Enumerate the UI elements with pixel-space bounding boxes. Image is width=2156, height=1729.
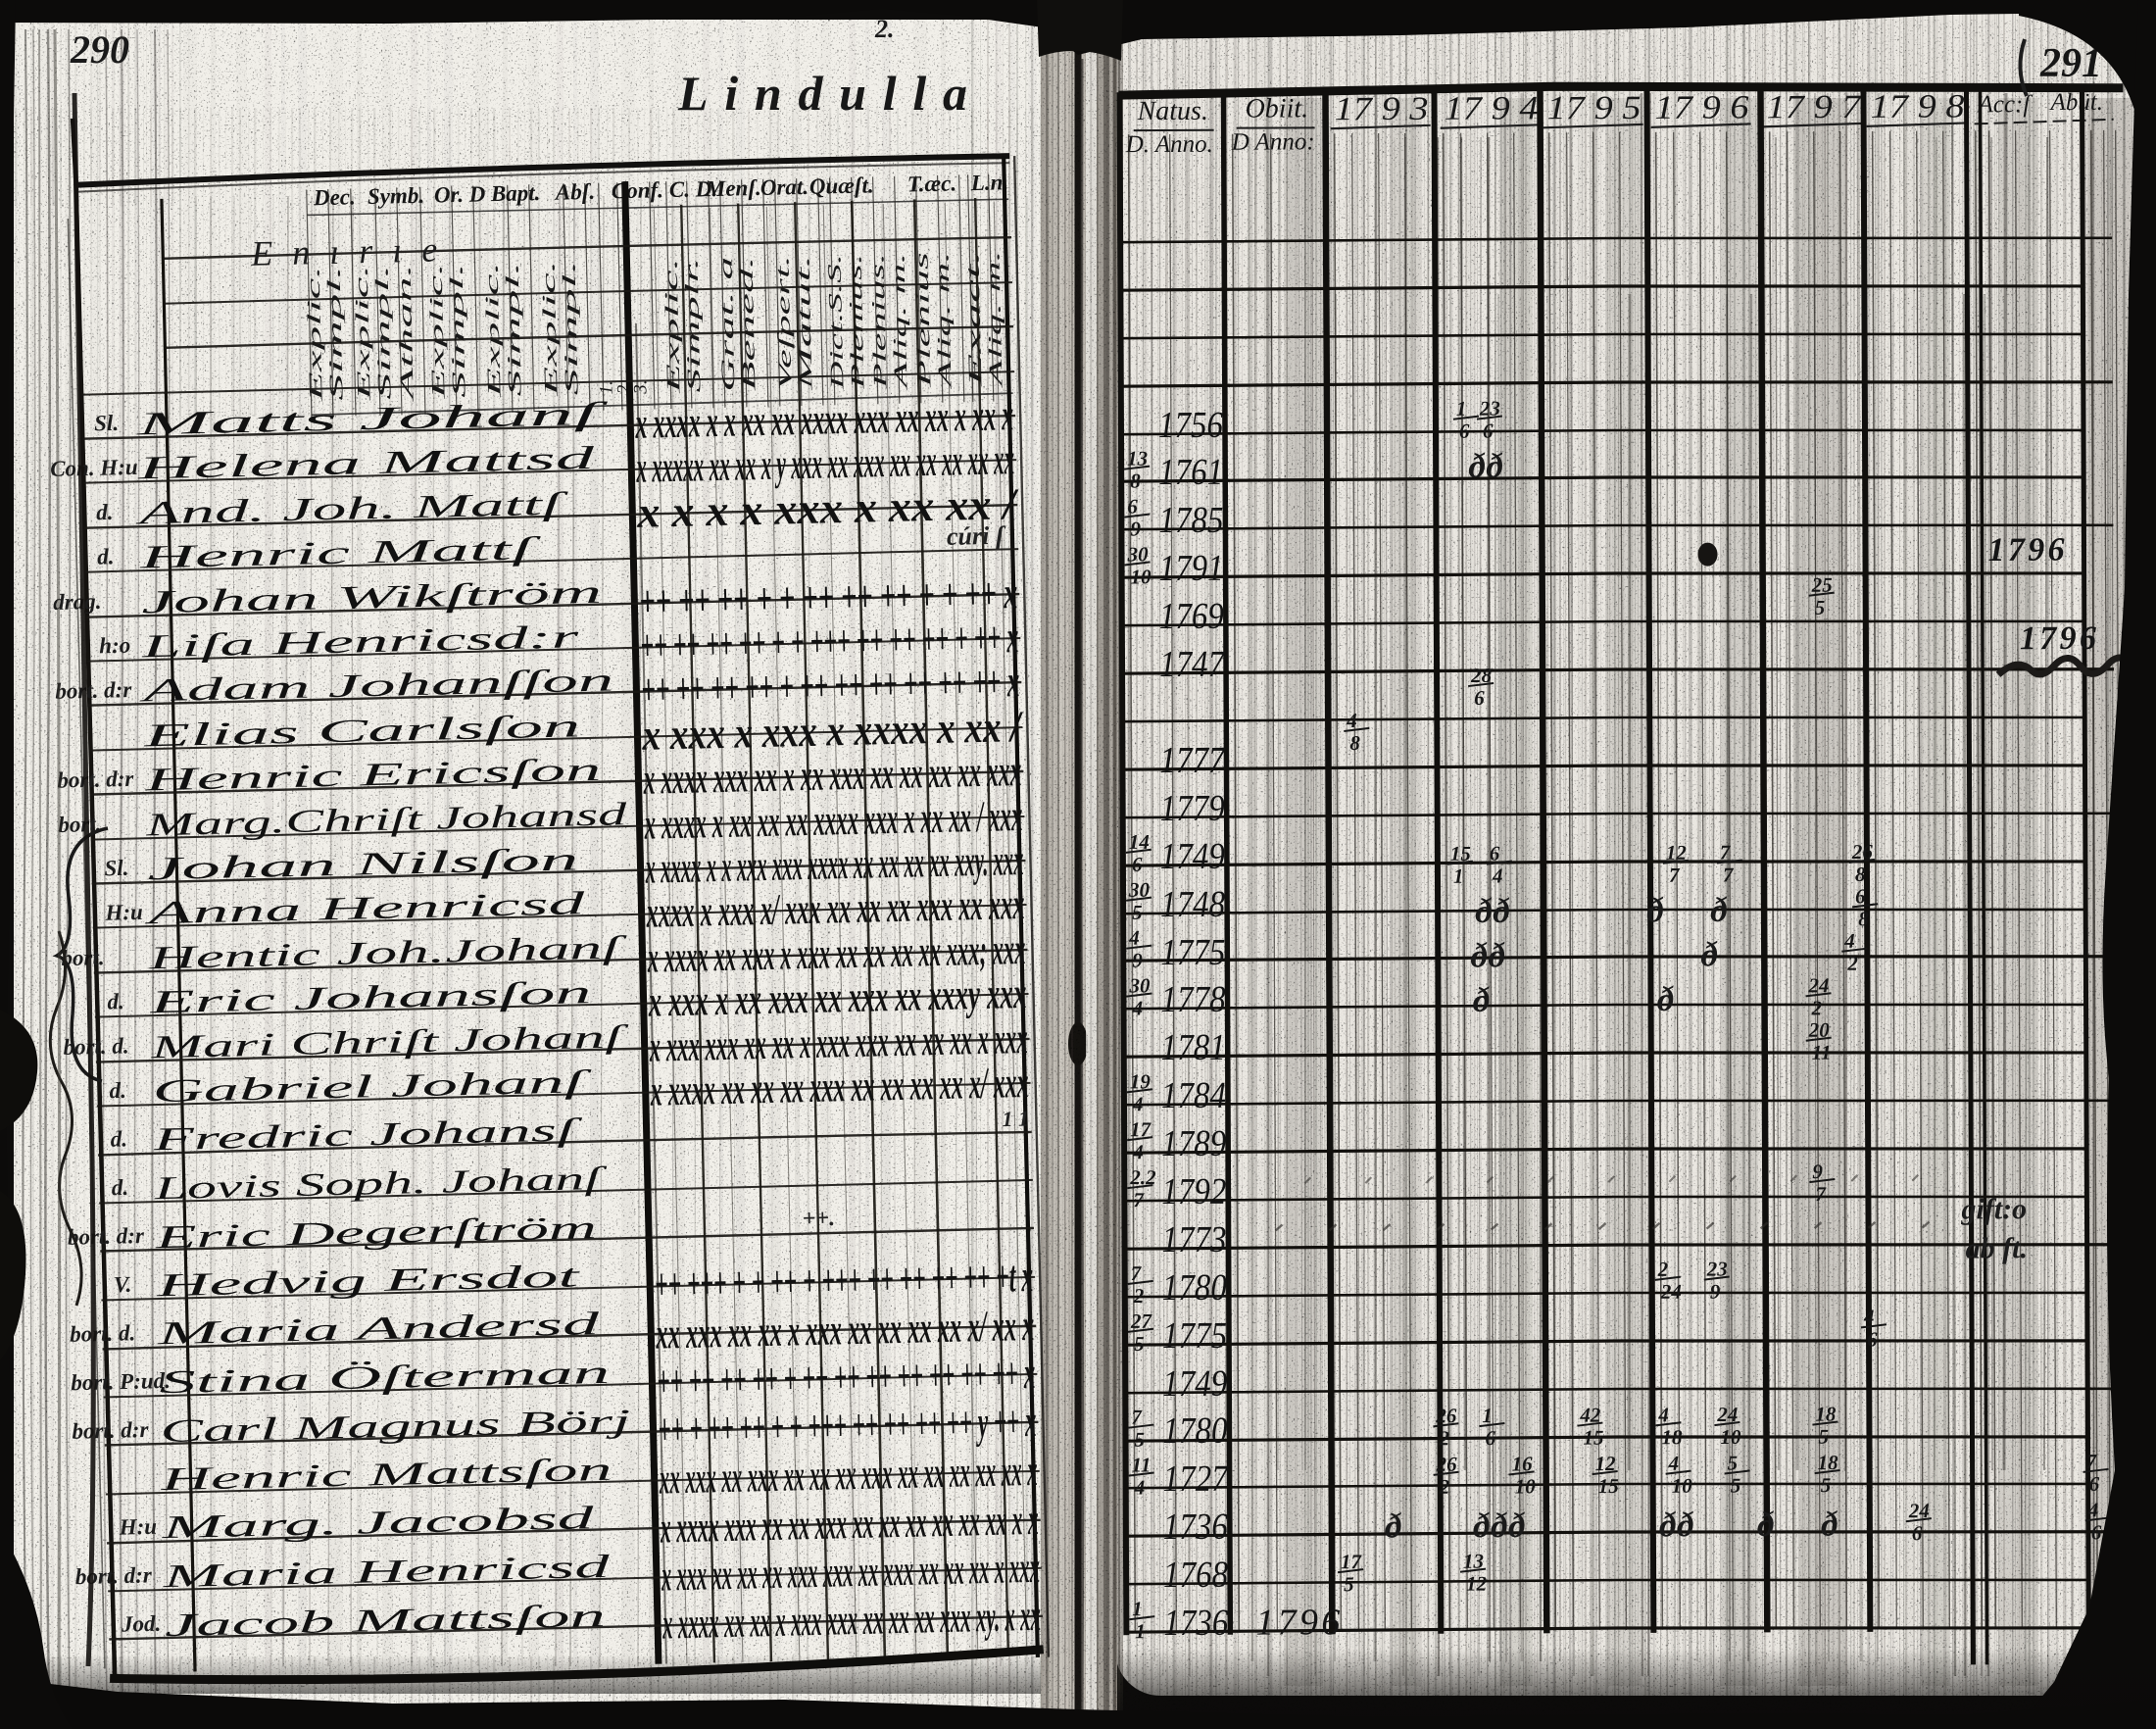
svg-text:V.: V.: [114, 1272, 132, 1297]
svg-text:6: 6: [1912, 1521, 1923, 1545]
svg-text:17 9 4: 17 9 4: [1444, 90, 1538, 126]
svg-text:1 1: 1 1: [1002, 1106, 1029, 1131]
svg-text:6: 6: [1867, 1327, 1878, 1351]
svg-text:1747: 1747: [1159, 644, 1226, 685]
svg-text:1773: 1773: [1161, 1219, 1226, 1260]
svg-text:5: 5: [1132, 901, 1143, 924]
svg-text:8: 8: [1858, 907, 1869, 930]
svg-text:bort. P:ud.: bort. P:ud.: [71, 1368, 171, 1395]
svg-text:Aliq. m.: Aliq. m.: [888, 253, 911, 393]
svg-text:4: 4: [1492, 864, 1503, 888]
svg-text:ð: ð: [1385, 1506, 1402, 1545]
svg-text:1: 1: [1135, 1619, 1146, 1643]
svg-text:D. Anno.: D. Anno.: [1125, 131, 1213, 158]
svg-text:18: 18: [1661, 1425, 1683, 1449]
svg-text:1781: 1781: [1161, 1027, 1226, 1068]
svg-text:ð: ð: [1646, 890, 1664, 929]
svg-text:6: 6: [1127, 495, 1138, 519]
svg-text:5: 5: [1728, 1451, 1739, 1474]
svg-text:7: 7: [1720, 840, 1732, 864]
svg-text:Abüt.: Abüt.: [2048, 89, 2103, 116]
svg-text:7: 7: [1669, 864, 1681, 887]
svg-text:Simpl.: Simpl.: [502, 261, 525, 396]
svg-text:9: 9: [1130, 518, 1141, 541]
svg-text:gift:o: gift:o: [1960, 1193, 2027, 1225]
svg-text:Natus.: Natus.: [1136, 96, 1207, 126]
svg-text:4: 4: [1346, 709, 1357, 732]
svg-text:d.: d.: [107, 989, 124, 1013]
svg-text:bort. d:r: bort. d:r: [75, 1562, 154, 1589]
svg-text:1768: 1768: [1163, 1555, 1228, 1596]
svg-text:8: 8: [1130, 469, 1141, 493]
svg-text:Obiit.: Obiit.: [1245, 93, 1308, 123]
svg-text:4: 4: [1863, 1305, 1875, 1328]
svg-text:D Anno:: D Anno:: [1231, 128, 1315, 155]
svg-text:1: 1: [1482, 1404, 1493, 1427]
svg-text:1780: 1780: [1162, 1267, 1227, 1309]
svg-text:1780: 1780: [1162, 1410, 1227, 1452]
svg-text:10: 10: [1720, 1425, 1741, 1449]
svg-text:6: 6: [2089, 1472, 2100, 1496]
svg-text:1736: 1736: [1163, 1507, 1228, 1548]
svg-text:4: 4: [1132, 1092, 1144, 1115]
svg-text:ð: ð: [1710, 890, 1728, 929]
svg-text:4: 4: [1132, 1140, 1144, 1163]
svg-text:1785: 1785: [1158, 500, 1223, 541]
svg-text:17 9 7: 17 9 7: [1766, 89, 1862, 125]
svg-text:Athan.: Athan.: [394, 264, 417, 405]
svg-text:x xxxx xx xx xx xxx xx xx xx: x xxxx xx xx xx xxx xx xx xx xx x/ xxx: [650, 1058, 1030, 1115]
svg-text:1791: 1791: [1159, 548, 1224, 589]
svg-text:5: 5: [1344, 1572, 1354, 1596]
svg-text:17 9 8: 17 9 8: [1870, 88, 1964, 124]
svg-text:7: 7: [1131, 1261, 1143, 1285]
svg-text:2: 2: [1133, 1284, 1145, 1308]
svg-text:5: 5: [1731, 1473, 1741, 1497]
svg-text:5: 5: [1815, 596, 1826, 619]
svg-text:T.æc.: T.æc.: [907, 171, 957, 196]
svg-text:4: 4: [2087, 1498, 2099, 1521]
svg-text:7: 7: [2086, 1450, 2098, 1473]
svg-text:d.: d.: [112, 1175, 129, 1200]
svg-text:10: 10: [1131, 565, 1152, 588]
svg-text:Plenius.: Plenius.: [845, 254, 868, 392]
svg-text:bort. d.: bort. d.: [70, 1320, 136, 1347]
svg-text:2: 2: [1846, 952, 1858, 975]
svg-text:ð: ð: [1757, 1505, 1775, 1544]
svg-text:6: 6: [2091, 1520, 2102, 1544]
svg-text:1727: 1727: [1163, 1458, 1230, 1500]
svg-text:Menſ.: Menſ.: [705, 175, 761, 201]
svg-text:7: 7: [1133, 1188, 1145, 1211]
svg-text:1792: 1792: [1161, 1171, 1226, 1212]
svg-text:Simpl.: Simpl.: [446, 263, 469, 398]
svg-text:ðð: ðð: [1475, 891, 1510, 930]
svg-text:1777: 1777: [1159, 740, 1226, 781]
svg-text:7: 7: [1815, 1182, 1827, 1206]
svg-text:drag.: drag.: [53, 589, 102, 615]
svg-text:4: 4: [1128, 926, 1140, 950]
svg-text:1: 1: [1456, 397, 1467, 420]
svg-text:bort. d:r: bort. d:r: [57, 766, 135, 793]
svg-text:1789: 1789: [1161, 1123, 1226, 1164]
svg-text:ð: ð: [1472, 980, 1490, 1019]
svg-text:1775: 1775: [1162, 1315, 1227, 1357]
svg-text:2: 2: [1811, 996, 1823, 1019]
svg-text:1761: 1761: [1158, 452, 1223, 493]
svg-text:Simpl.: Simpl.: [559, 260, 582, 395]
svg-text:Abſ.: Abſ.: [554, 179, 596, 205]
svg-text:17 9 5: 17 9 5: [1546, 90, 1641, 126]
svg-text:Or. D: Or. D: [434, 181, 486, 207]
svg-text:6: 6: [1490, 842, 1500, 865]
svg-text:1769: 1769: [1159, 596, 1224, 637]
svg-text:d.: d.: [97, 544, 115, 568]
svg-text:Dec.: Dec.: [313, 184, 356, 210]
svg-text:Orat.: Orat.: [760, 174, 809, 200]
svg-text:bort. d:r: bort. d:r: [68, 1223, 146, 1250]
svg-text:1736: 1736: [1163, 1603, 1228, 1644]
svg-text:9: 9: [1710, 1280, 1721, 1304]
svg-text:4: 4: [1843, 929, 1855, 953]
svg-text:++ + ++ ++ + + +++ ++ ++ ++ +: ++ + ++ ++ + + +++ ++ ++ ++ ++ y ++ x: [658, 1396, 1037, 1455]
svg-text:10: 10: [1672, 1474, 1693, 1498]
svg-text:ðð: ðð: [1468, 446, 1503, 485]
svg-text:1: 1: [1453, 864, 1464, 888]
svg-text:9: 9: [1812, 1160, 1823, 1183]
svg-text:2.: 2.: [874, 15, 895, 43]
svg-text:17 9 3: 17 9 3: [1334, 91, 1428, 127]
svg-text:++.: ++.: [802, 1206, 835, 1232]
svg-text:290: 290: [70, 27, 129, 72]
svg-text:H:u: H:u: [118, 1514, 157, 1540]
svg-text:1784: 1784: [1161, 1075, 1226, 1116]
svg-text:ð: ð: [1700, 934, 1718, 973]
svg-text:ðð: ðð: [1659, 1505, 1694, 1544]
svg-text:9: 9: [1132, 949, 1143, 972]
svg-text:1779: 1779: [1160, 788, 1225, 829]
svg-text:6: 6: [1485, 1426, 1495, 1450]
svg-text:d.: d.: [109, 1078, 126, 1103]
svg-text:1749: 1749: [1160, 836, 1225, 877]
svg-text:ððð: ððð: [1473, 1506, 1526, 1545]
svg-text:1: 1: [1132, 1597, 1143, 1620]
svg-text:ð: ð: [1821, 1505, 1838, 1544]
svg-text:11: 11: [1812, 1041, 1832, 1064]
svg-text:ab ſt.: ab ſt.: [1966, 1232, 2028, 1264]
svg-text:1775: 1775: [1160, 932, 1225, 973]
svg-text:cúri ſ: cúri ſ: [947, 521, 1006, 551]
svg-text:1778: 1778: [1160, 979, 1225, 1020]
svg-text:Aliq. m.: Aliq. m.: [932, 252, 955, 392]
svg-text:++ +++ + + ++ + +++ ++ ++ ++ +: ++ +++ + + ++ + +++ ++ ++ ++ ++ +t x: [655, 1251, 1034, 1309]
svg-text:5: 5: [1818, 1425, 1829, 1449]
svg-text:ð: ð: [1656, 979, 1674, 1018]
svg-text:6: 6: [1855, 884, 1866, 908]
svg-text:7: 7: [1723, 863, 1735, 886]
svg-text:d.: d.: [110, 1126, 127, 1151]
svg-text:12: 12: [1466, 1572, 1488, 1596]
svg-text:6: 6: [1483, 420, 1494, 443]
svg-text:6: 6: [1132, 853, 1143, 876]
svg-text:17 9 6: 17 9 6: [1654, 89, 1748, 125]
svg-text:5: 5: [1821, 1473, 1832, 1497]
svg-text:Sl.: Sl.: [104, 856, 128, 881]
svg-text:7: 7: [1131, 1406, 1143, 1429]
svg-text:5: 5: [1134, 1332, 1145, 1356]
svg-text:2: 2: [1438, 1426, 1449, 1450]
svg-text:ðð: ðð: [1470, 935, 1505, 974]
svg-text:Simpl.: Simpl.: [324, 266, 348, 401]
svg-text:bort. d:r: bort. d:r: [55, 677, 133, 704]
svg-text:1748: 1748: [1160, 884, 1225, 925]
svg-text:4: 4: [1657, 1403, 1669, 1426]
svg-text:10: 10: [1515, 1474, 1537, 1498]
svg-text:Jod.: Jod.: [121, 1611, 162, 1637]
svg-text:h:o: h:o: [99, 633, 131, 659]
svg-text:6: 6: [1459, 420, 1470, 443]
svg-text:4: 4: [1134, 1476, 1146, 1500]
svg-text:Conf.: Conf.: [612, 177, 664, 203]
svg-text:1749: 1749: [1162, 1363, 1227, 1405]
svg-text:15: 15: [1598, 1474, 1619, 1498]
svg-text:bort. d:r: bort. d:r: [72, 1417, 150, 1444]
svg-text:24: 24: [1660, 1280, 1682, 1304]
svg-text:Sl.: Sl.: [94, 411, 119, 436]
svg-text:Con. H:u: Con. H:u: [50, 455, 138, 481]
svg-text:Simpl.: Simpl.: [372, 264, 396, 399]
svg-text:4: 4: [1668, 1452, 1680, 1475]
svg-text:Bapt.: Bapt.: [490, 180, 541, 206]
svg-text:1756: 1756: [1158, 405, 1223, 446]
svg-text:H:u: H:u: [104, 900, 143, 925]
svg-text:5: 5: [1134, 1428, 1145, 1452]
svg-text:8: 8: [1349, 731, 1360, 755]
svg-text:4: 4: [1132, 997, 1144, 1020]
svg-text:291: 291: [2039, 41, 2102, 86]
svg-text:x xxxx xx xx x xxx xxx xx xx: x xxxx xx xx x xxx xxx xx xx xx xxx xy. …: [661, 1591, 1042, 1649]
svg-text:2: 2: [1657, 1258, 1669, 1281]
svg-text:15: 15: [1583, 1426, 1603, 1450]
svg-text:2: 2: [1439, 1475, 1450, 1499]
svg-text:8: 8: [1855, 863, 1866, 886]
svg-text:d.: d.: [96, 500, 114, 524]
svg-text:xx xxx xx xxx xx xx xx xxx xx: xx xxx xx xxx xx xx xx xxx xx xx xx xx x…: [659, 1446, 1039, 1504]
svg-text:6: 6: [1474, 686, 1485, 710]
